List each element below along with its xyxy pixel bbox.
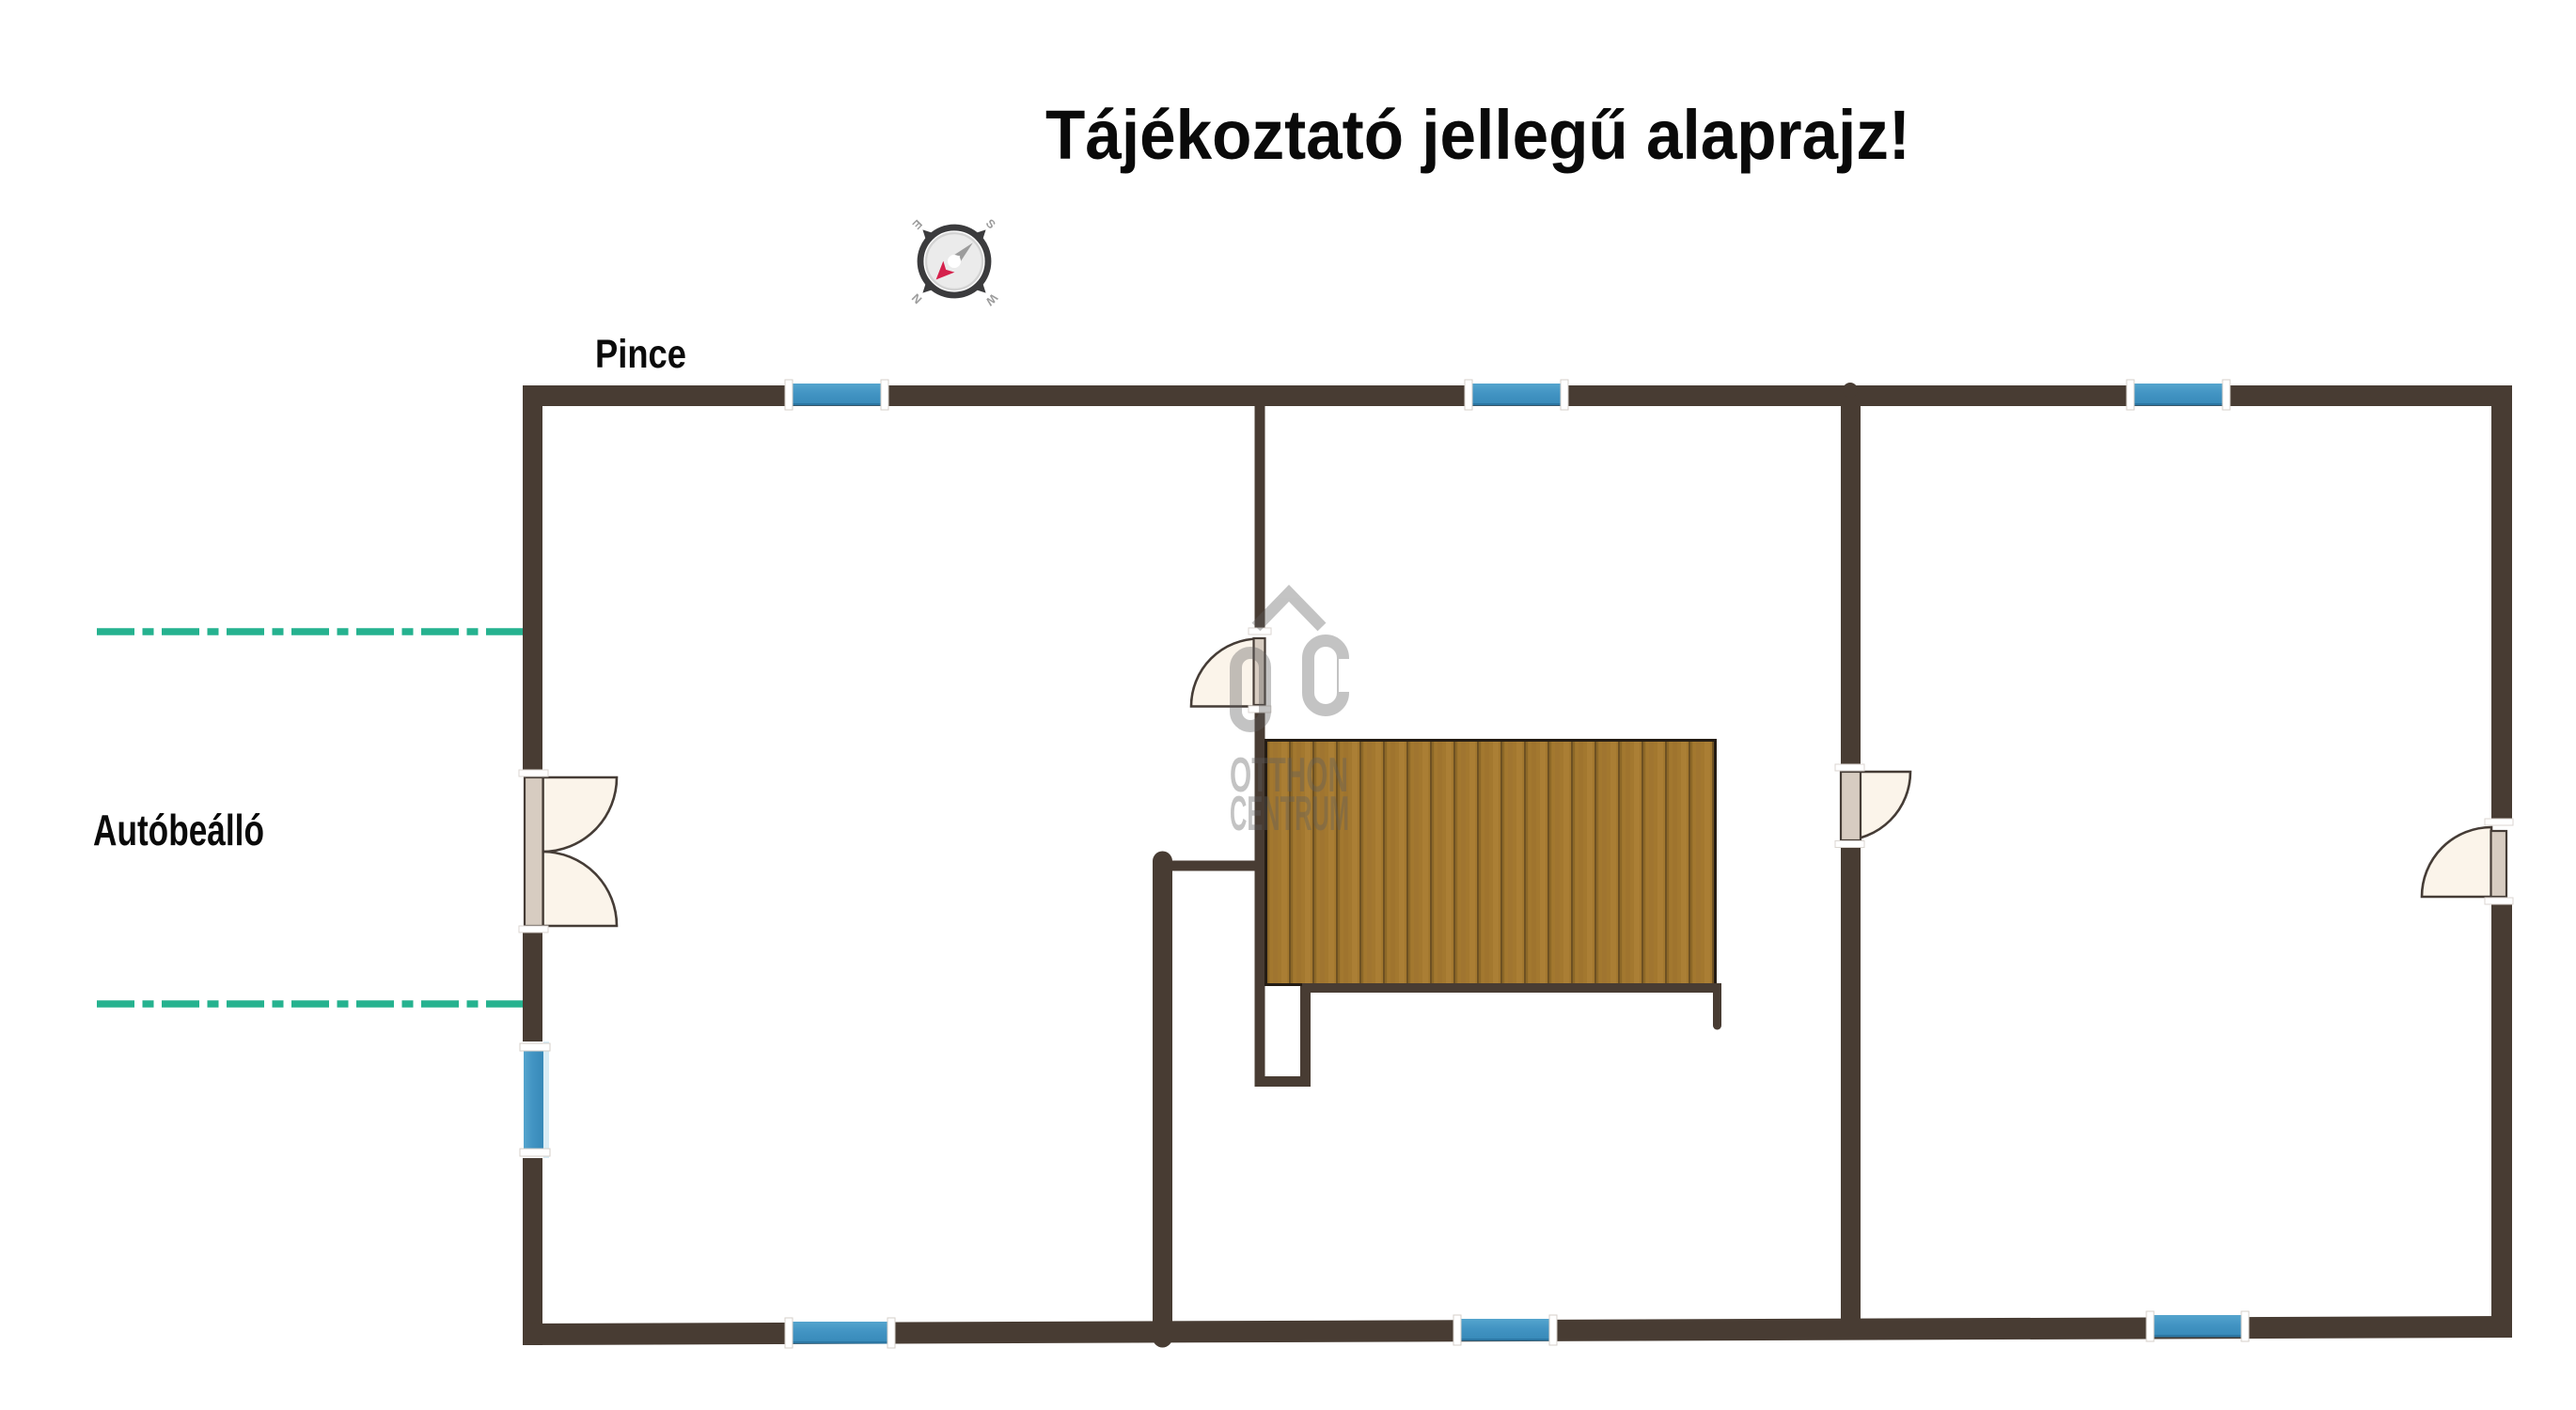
svg-text:CENTRUM: CENTRUM	[1230, 787, 1349, 841]
svg-text:Pince: Pince	[595, 332, 686, 377]
svg-text:Tájékoztató jellegű alaprajz!: Tájékoztató jellegű alaprajz!	[1045, 96, 1910, 174]
svg-text:Autóbeálló: Autóbeálló	[93, 806, 264, 854]
